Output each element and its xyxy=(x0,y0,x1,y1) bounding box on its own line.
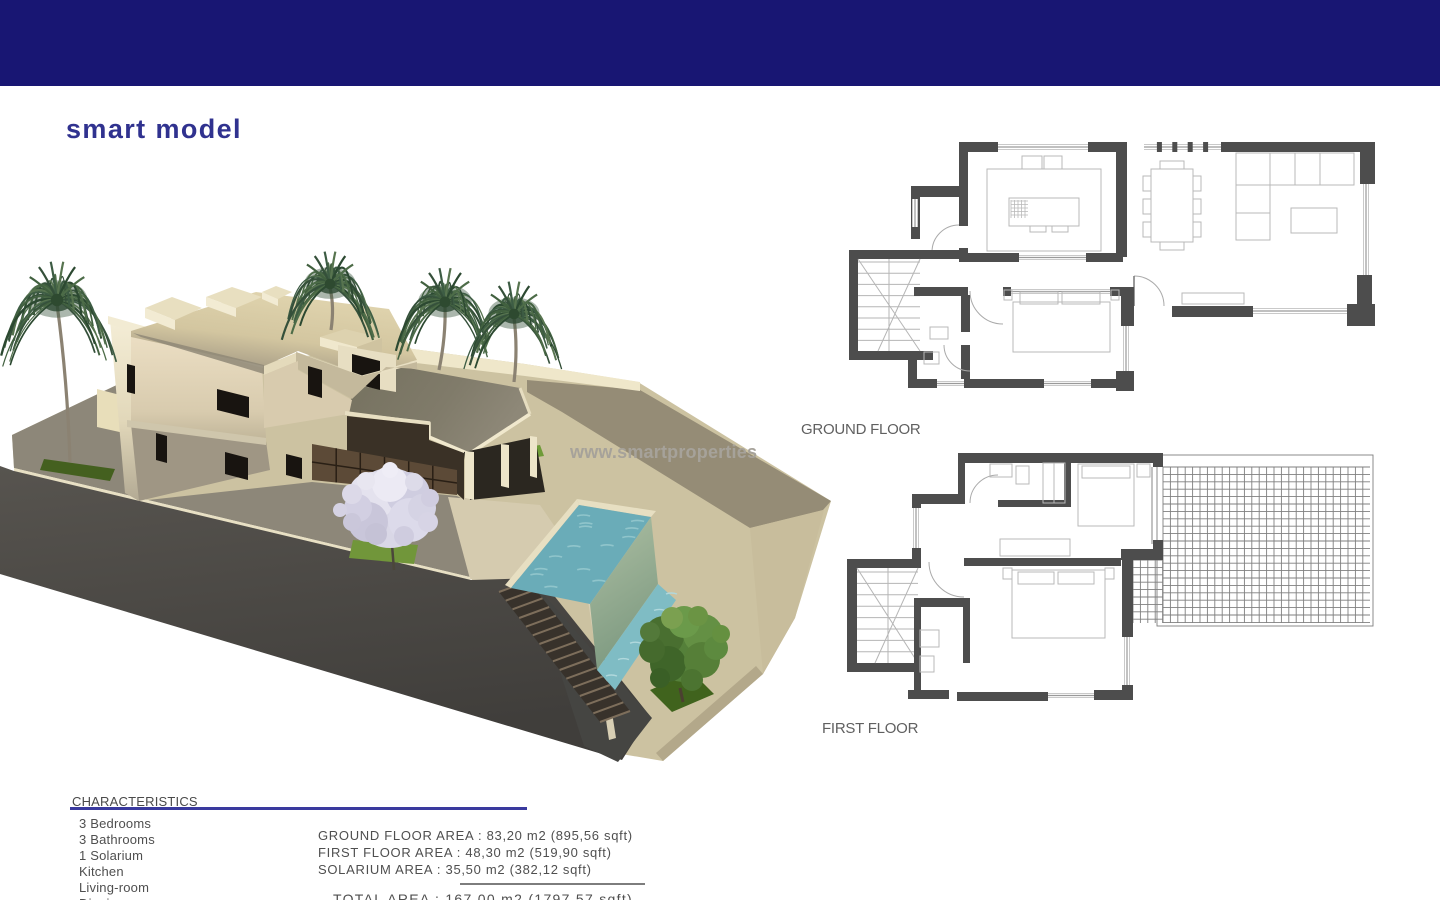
svg-text:FIRST FLOOR: FIRST FLOOR xyxy=(822,720,919,737)
svg-text:GROUND FLOOR: GROUND FLOOR xyxy=(801,421,921,438)
